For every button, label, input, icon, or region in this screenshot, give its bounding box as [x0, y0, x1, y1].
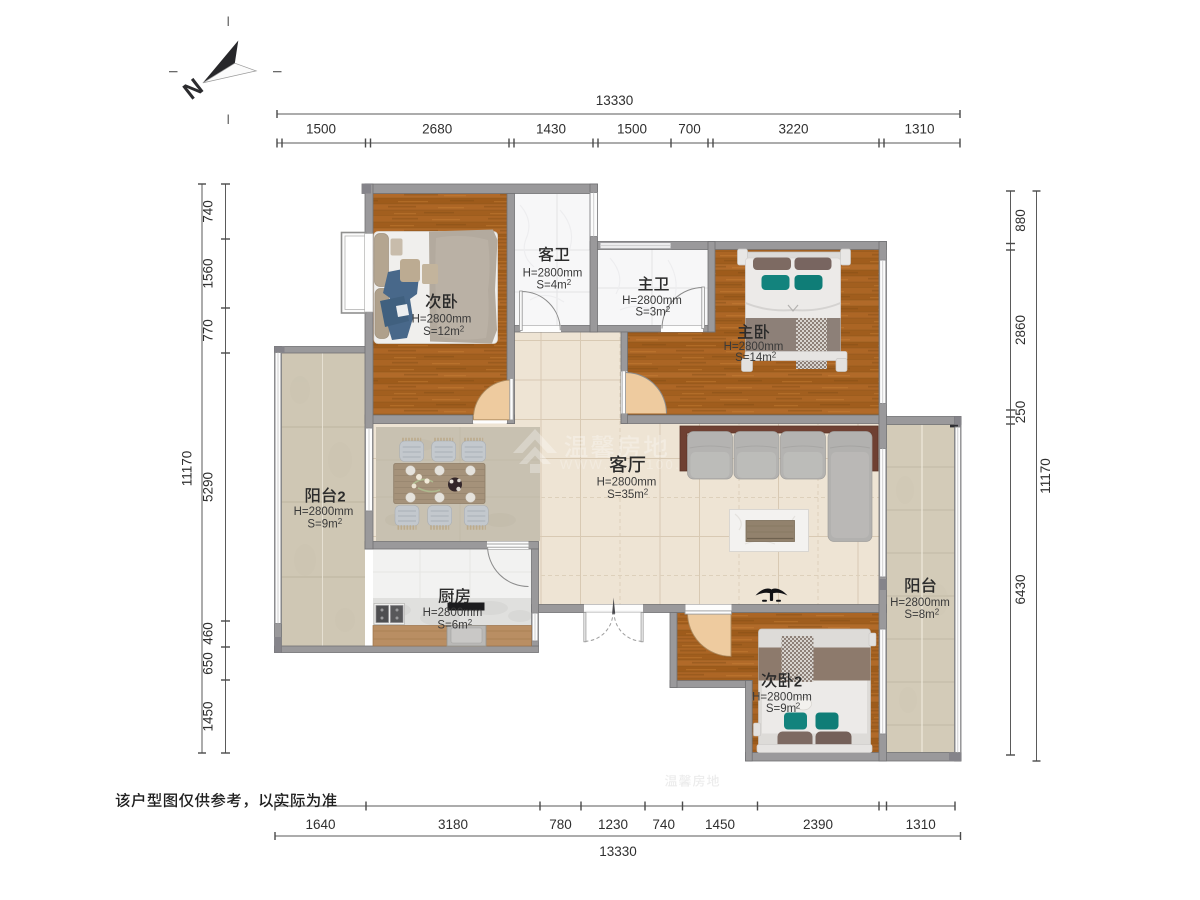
- svg-text:2: 2: [468, 618, 473, 627]
- svg-text:1310: 1310: [906, 817, 936, 832]
- svg-text:2: 2: [567, 278, 572, 287]
- svg-text:1450: 1450: [201, 701, 216, 731]
- svg-text:H=2800mm: H=2800mm: [423, 607, 483, 619]
- svg-text:S=9m: S=9m: [766, 703, 796, 715]
- svg-text:5290: 5290: [201, 472, 216, 502]
- svg-text:2680: 2680: [422, 122, 452, 137]
- svg-text:650: 650: [201, 652, 216, 675]
- svg-text:S=8m: S=8m: [904, 609, 934, 621]
- svg-text:2: 2: [935, 608, 940, 617]
- svg-text:H=2800mm: H=2800mm: [890, 597, 950, 609]
- svg-text:H=2800mm: H=2800mm: [752, 692, 812, 704]
- svg-text:H=2800mm: H=2800mm: [294, 506, 354, 518]
- svg-text:2: 2: [460, 325, 465, 334]
- svg-text:1500: 1500: [617, 122, 647, 137]
- svg-text:880: 880: [1013, 209, 1028, 232]
- svg-text:S=3m: S=3m: [635, 307, 665, 319]
- svg-text:2860: 2860: [1013, 315, 1028, 345]
- svg-text:1430: 1430: [536, 122, 566, 137]
- svg-text:2: 2: [796, 702, 801, 711]
- svg-text:2390: 2390: [803, 817, 833, 832]
- svg-text:3220: 3220: [778, 122, 808, 137]
- svg-text:1450: 1450: [705, 817, 735, 832]
- svg-text:H=2800mm: H=2800mm: [622, 295, 682, 307]
- svg-text:H=2800mm: H=2800mm: [523, 268, 583, 280]
- svg-text:250: 250: [1013, 401, 1028, 424]
- svg-text:3180: 3180: [438, 817, 468, 832]
- svg-text:11170: 11170: [180, 451, 195, 487]
- svg-text:740: 740: [201, 200, 216, 223]
- svg-text:N: N: [178, 73, 208, 105]
- svg-text:S=12m: S=12m: [423, 326, 460, 338]
- svg-text:13330: 13330: [596, 93, 634, 108]
- svg-text:1230: 1230: [598, 817, 628, 832]
- svg-text:2: 2: [666, 305, 671, 314]
- svg-text:13330: 13330: [599, 844, 637, 859]
- svg-text:6430: 6430: [1013, 574, 1028, 604]
- svg-text:S=14m: S=14m: [735, 352, 772, 364]
- svg-text:460: 460: [201, 622, 216, 645]
- svg-text:2: 2: [772, 351, 777, 360]
- svg-text:770: 770: [201, 319, 216, 342]
- svg-text:S=4m: S=4m: [536, 280, 566, 292]
- svg-text:1500: 1500: [306, 122, 336, 137]
- svg-text:2: 2: [794, 674, 802, 690]
- svg-text:11170: 11170: [1038, 458, 1053, 494]
- svg-text:1560: 1560: [201, 258, 216, 288]
- svg-text:S=35m: S=35m: [607, 489, 644, 501]
- svg-text:S=9m: S=9m: [307, 519, 337, 531]
- svg-text:740: 740: [652, 817, 675, 832]
- svg-text:2: 2: [338, 517, 343, 526]
- svg-text:780: 780: [549, 817, 572, 832]
- svg-text:2: 2: [337, 489, 345, 505]
- svg-text:S=6m: S=6m: [437, 620, 467, 632]
- svg-text:1640: 1640: [305, 817, 335, 832]
- svg-text:1310: 1310: [904, 122, 934, 137]
- svg-text:700: 700: [678, 122, 701, 137]
- svg-text:2: 2: [644, 488, 649, 497]
